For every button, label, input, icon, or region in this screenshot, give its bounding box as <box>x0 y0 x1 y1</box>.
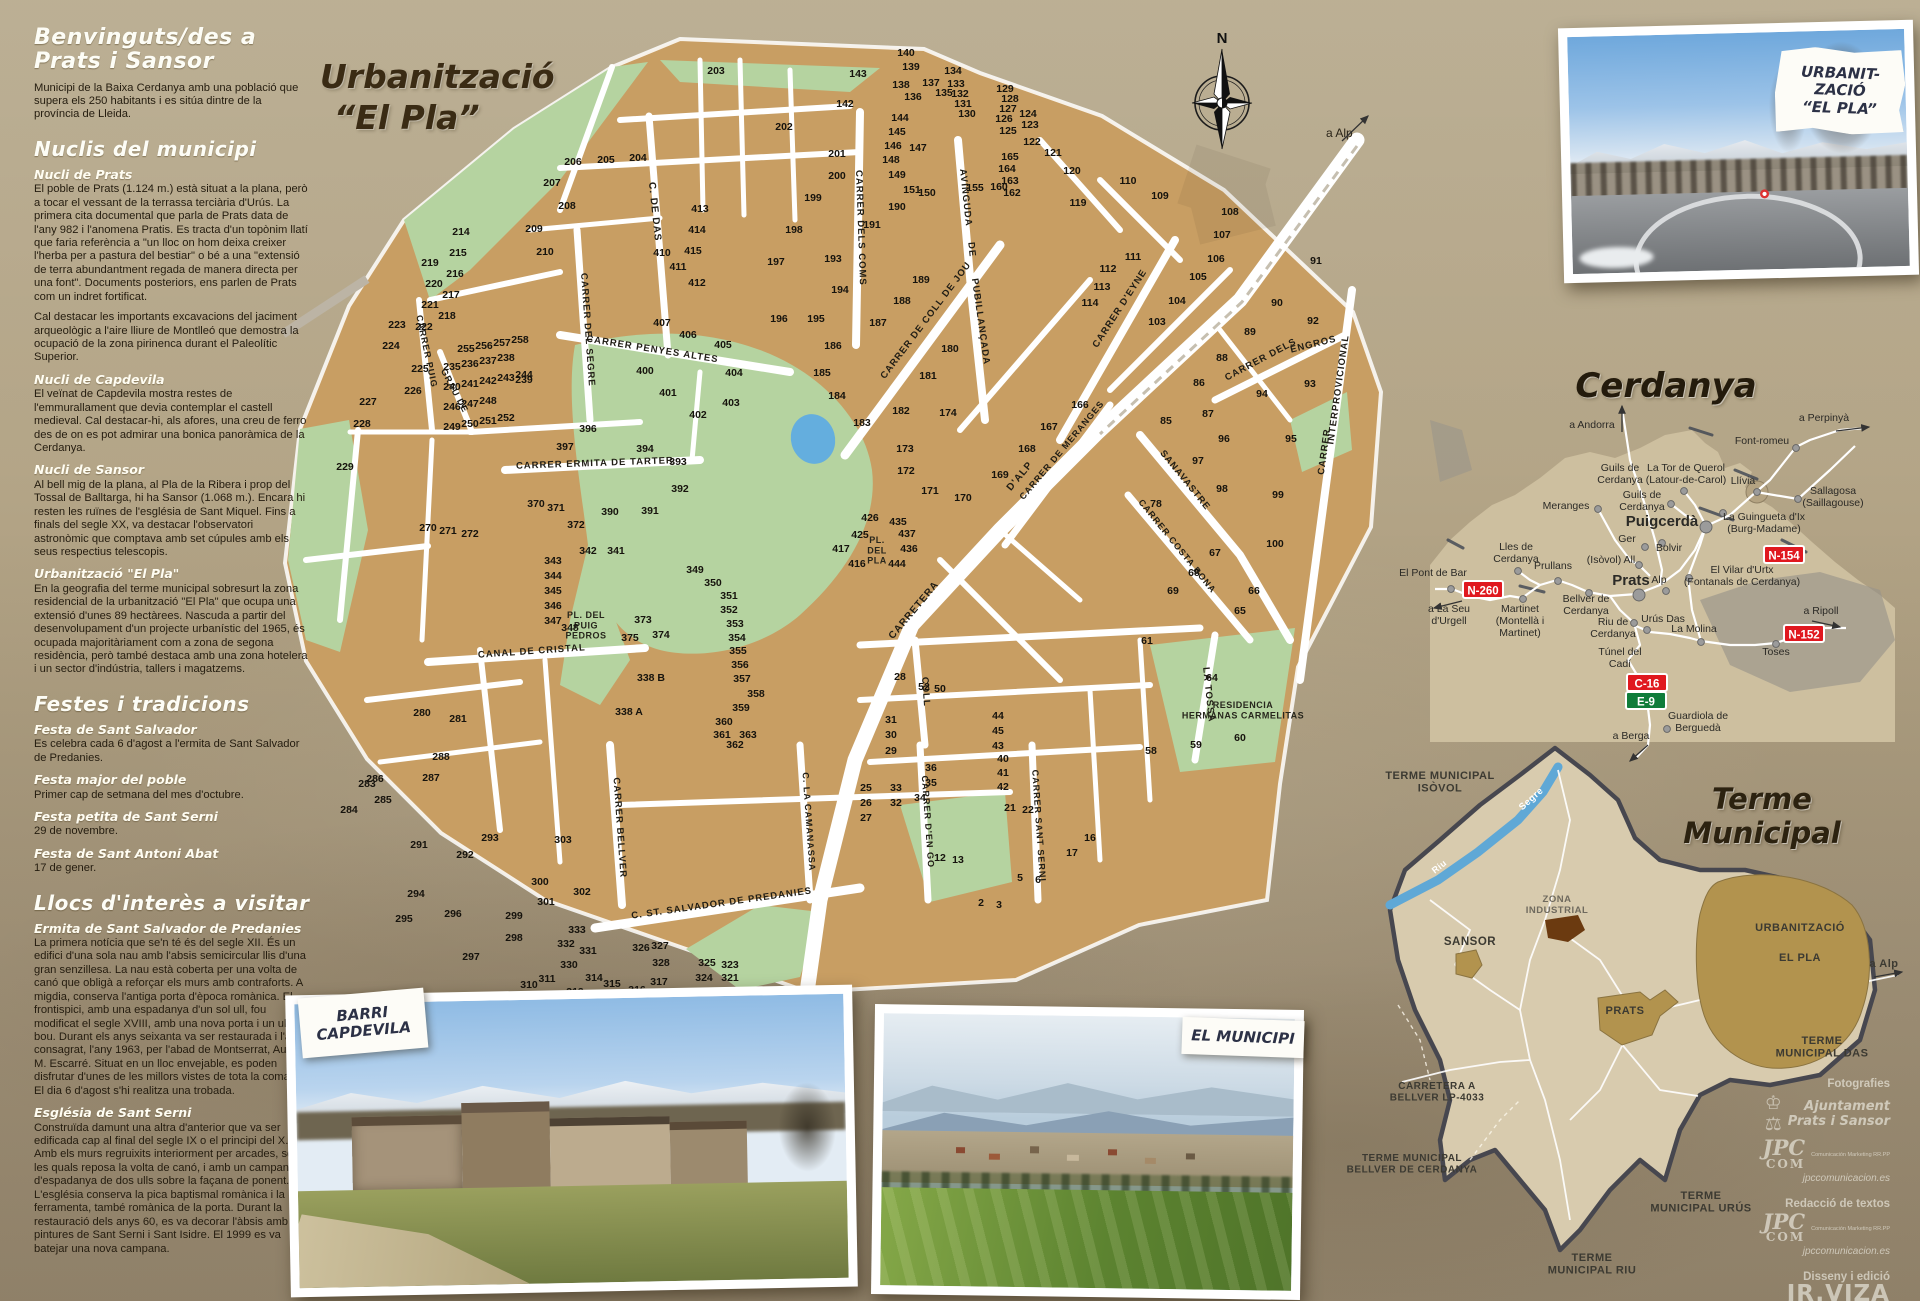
parcel-number: 330 <box>560 959 578 971</box>
parcel-number: 328 <box>652 957 670 969</box>
parcel-number: 104 <box>1168 295 1186 307</box>
compass-n-label: N <box>1217 30 1228 47</box>
parcel-number: 85 <box>1160 415 1172 427</box>
parcel-number: 355 <box>729 645 747 657</box>
town-label: Toses <box>1762 646 1789 658</box>
parcel-number: 34 <box>914 792 926 804</box>
parcel-number: 298 <box>505 932 523 944</box>
festa-3-text: 29 de novembre. <box>34 825 310 838</box>
parcel-number: 394 <box>636 443 654 455</box>
parcel-number: 66 <box>1248 585 1260 597</box>
parcel-number: 353 <box>726 618 744 630</box>
parcel-number: 98 <box>1216 483 1228 495</box>
town-dot <box>1636 562 1643 569</box>
parcel-number: 257 <box>493 337 511 349</box>
parcel-number: 12 <box>934 852 946 864</box>
parcel-number: 240 <box>443 381 461 393</box>
parcel-number: 209 <box>525 223 543 235</box>
parcel-number: 286 <box>366 773 384 785</box>
parcel-number: 374 <box>652 629 670 641</box>
parcel-number: 297 <box>462 951 480 963</box>
credit-redaccio-label: Redacció de textos <box>1690 1198 1890 1210</box>
parcel-number: 167 <box>1040 421 1058 433</box>
roof-5 <box>1108 1150 1117 1156</box>
town-label: Meranges <box>1543 500 1590 512</box>
parcel-number: 160 <box>990 181 1008 193</box>
parcel-number: 168 <box>1018 443 1036 455</box>
parcel-number: 223 <box>388 319 406 331</box>
parcel-number: 16 <box>1084 832 1096 844</box>
scales-icon: ⚖ <box>1765 1114 1782 1135</box>
parcel-number: 68 <box>1188 567 1200 579</box>
parcel-number: 281 <box>449 713 467 725</box>
parcel-number: 354 <box>728 632 746 644</box>
parcel-number: 187 <box>869 317 887 329</box>
parcel-number: 258 <box>511 334 529 346</box>
parcel-number: 112 <box>1100 263 1117 275</box>
parcel-number: 391 <box>641 505 659 517</box>
parcel-number: 87 <box>1202 408 1214 420</box>
parcel-number: 344 <box>544 570 562 582</box>
road-badge-text: N-152 <box>1788 630 1819 642</box>
parcel-number: 105 <box>1189 271 1207 283</box>
town-dot <box>1795 496 1802 503</box>
terme-label: TERME MUNICIPALISÒVOL <box>1385 770 1494 795</box>
parcel-number: 404 <box>725 367 743 379</box>
parcel-number: 217 <box>442 289 460 301</box>
parcel-number: 126 <box>995 113 1013 125</box>
parcel-number: 96 <box>1218 433 1230 445</box>
parcel-number: 407 <box>653 317 671 329</box>
parcel-number: 171 <box>921 485 939 497</box>
parcel-number: 61 <box>1141 635 1153 647</box>
parcel-number: 390 <box>601 506 619 518</box>
town-dot <box>1644 627 1651 634</box>
parcel-number: 331 <box>579 945 597 957</box>
parcel-number: 225 <box>411 363 429 375</box>
parcel-number: 246 <box>443 401 461 413</box>
parcel-number: 321 <box>721 972 739 984</box>
parcel-number: 189 <box>912 274 930 286</box>
town-label: La Guingueta d'Ix(Burg-Madame) <box>1723 511 1806 535</box>
parcel-number: 88 <box>1216 352 1228 364</box>
town-label: Guils deCerdanya <box>1619 489 1665 513</box>
parcel-number: 25 <box>860 782 872 794</box>
terme-label: CARRETERA ABELLVER LP-4033 <box>1390 1081 1485 1104</box>
parcel-number: 155 <box>966 182 984 194</box>
parcel-number: 13 <box>952 854 964 866</box>
poster: C. DE DASCARRER DEL SEGRECARRER PUIGGRAU… <box>0 0 1920 1301</box>
parcel-number: 22 <box>1022 804 1034 816</box>
parcel-number: 301 <box>537 896 555 908</box>
parcel-number: 360 <box>715 716 733 728</box>
town-dot <box>1448 586 1455 593</box>
parcel-number: 343 <box>544 555 562 567</box>
parcel-number: 210 <box>536 246 554 258</box>
parcel-number: 36 <box>925 762 937 774</box>
parcel-number: 396 <box>579 423 597 435</box>
compass-rose: N <box>1192 30 1252 149</box>
parcel-number: 285 <box>374 794 392 806</box>
parcel-number: 204 <box>629 152 647 164</box>
subhead-urbanitzacio: Urbanització "El Pla" <box>34 567 310 581</box>
town-label: El Pont de Bar <box>1399 567 1467 579</box>
parcel-number: 271 <box>439 525 457 537</box>
parcel-number: 106 <box>1207 253 1225 265</box>
parcel-number: 92 <box>1307 315 1319 327</box>
parcel-number: 272 <box>461 528 479 540</box>
parcel-number: 342 <box>579 545 597 557</box>
parcel-number: 91 <box>1310 255 1322 267</box>
parcel-number: 373 <box>634 614 652 626</box>
parcel-number: 6 <box>1035 874 1041 886</box>
parcel-number: 65 <box>1234 605 1246 617</box>
parcel-number: 180 <box>941 343 959 355</box>
parcel-number: 78 <box>1150 498 1162 510</box>
parcel-number: 226 <box>404 385 422 397</box>
parcel-number: 270 <box>419 522 437 534</box>
parcel-number: 185 <box>813 367 831 379</box>
parcel-number: 144 <box>891 112 909 124</box>
parcel-number: 181 <box>919 370 937 382</box>
parcel-number: 414 <box>688 224 706 236</box>
parcel-number: 417 <box>832 543 850 555</box>
cerdanya-mountains-w <box>1430 420 1472 482</box>
town-label: Font-romeu <box>1735 435 1789 447</box>
parcel-number: 243 <box>497 372 515 384</box>
parcel-number: 284 <box>340 804 358 816</box>
parcel-number: 140 <box>897 47 915 59</box>
parcel-number: 227 <box>359 396 377 408</box>
road-badge-text: N-154 <box>1768 551 1800 563</box>
parcel-number: 222 <box>415 321 433 333</box>
parcel-number: 294 <box>407 888 425 900</box>
parcel-number: 248 <box>479 395 497 407</box>
info-sidebar: Benvinguts/des aPrats i Sansor Municipi … <box>34 26 310 1284</box>
ajuntament-credit: AjuntamentPrats i Sansor <box>1788 1100 1890 1130</box>
parcel-number: 42 <box>997 781 1009 793</box>
parcel-number: 219 <box>421 257 439 269</box>
urbanitzacio-blob <box>1696 875 1869 1068</box>
parcel-number: 86 <box>1193 377 1205 389</box>
parcel-number: 97 <box>1192 455 1204 467</box>
parcel-number: 183 <box>853 417 871 429</box>
town-label: Guardiola deBerguedà <box>1668 710 1728 734</box>
credit-photos-label: Fotografies <box>1690 1078 1890 1090</box>
parcel-number: 426 <box>861 512 879 524</box>
parcel-number: 142 <box>836 98 854 110</box>
crown-icon: ♔⚖ <box>1765 1094 1782 1136</box>
town-label: a Berga <box>1613 730 1650 742</box>
parcel-number: 2 <box>978 897 984 909</box>
parcel-number: 191 <box>863 219 881 231</box>
parcel-number: 28 <box>894 671 906 683</box>
roof-6 <box>1145 1158 1156 1164</box>
town-label: Prats <box>1612 572 1650 589</box>
parcel-number: 93 <box>1304 378 1316 390</box>
parcel-number: 27 <box>860 812 872 824</box>
urbanitzacio-paragraph: En la geografia del terme municipal sobr… <box>34 583 310 677</box>
festa-2-head: Festa major del poble <box>34 773 310 787</box>
terme-label: EL PLA <box>1779 952 1821 964</box>
parcel-number: 238 <box>497 352 515 364</box>
parcel-number: 208 <box>558 200 576 212</box>
sansor-paragraph: Al bell mig de la plana, al Pla de la Ri… <box>34 479 310 560</box>
parcel-number: 229 <box>336 461 354 473</box>
parcel-number: 169 <box>991 469 1009 481</box>
subhead-capdevila: Nucli de Capdevila <box>34 373 310 387</box>
town-dot <box>1664 726 1671 733</box>
parcel-number: 59 <box>1190 739 1202 751</box>
roof-1 <box>956 1147 965 1153</box>
parcel-number: 347 <box>544 615 562 627</box>
parcel-number: 218 <box>438 310 456 322</box>
festa-1-text: Es celebra cada 6 d'agost a l'ermita de … <box>34 738 310 765</box>
terme-label: PRATS <box>1606 1005 1645 1017</box>
town-label: Ger <box>1618 533 1636 545</box>
parcel-number: 41 <box>997 767 1009 779</box>
parcel-number: 60 <box>1234 732 1246 744</box>
intro-paragraph: Municipi de la Baixa Cerdanya amb una po… <box>34 82 310 122</box>
parcel-number: 220 <box>425 278 443 290</box>
parcel-number: 235 <box>443 361 461 373</box>
town-label: a Perpinyà <box>1799 412 1849 424</box>
parcel-number: 242 <box>479 375 497 387</box>
parcel-number: 164 <box>998 163 1016 175</box>
parcel-number: 375 <box>621 632 639 644</box>
parcel-number: 397 <box>556 441 574 453</box>
parcel-number: 58 <box>1145 745 1157 757</box>
town-dot <box>1663 588 1670 595</box>
parcel-number: 295 <box>395 913 413 925</box>
parcel-number: 40 <box>997 753 1009 765</box>
terme-label: a Alp <box>1870 958 1899 970</box>
parcel-number: 356 <box>731 659 749 671</box>
parcel-number: 184 <box>828 390 846 402</box>
parcel-number: 195 <box>807 313 825 325</box>
parcel-number: 125 <box>999 125 1017 137</box>
parcel-number: 303 <box>554 834 572 846</box>
prats-paragraph-2: Cal destacar les importants excavacions … <box>34 311 310 365</box>
parcel-number: 120 <box>1063 165 1081 177</box>
parcel-number: 437 <box>898 528 916 540</box>
parcel-number: 372 <box>567 519 585 531</box>
jpc-logo: JPCCOM Comunicación Marketing RR.PP <box>1690 1140 1890 1171</box>
parcel-number: 198 <box>785 224 803 236</box>
parcel-number: 406 <box>679 329 697 341</box>
parcel-number: 5 <box>1017 872 1023 884</box>
parcel-number: 241 <box>461 378 479 390</box>
parcel-number: 317 <box>650 976 668 988</box>
parcel-number: 69 <box>1167 585 1179 597</box>
parcel-number: 256 <box>475 340 493 352</box>
parcel-number: 182 <box>892 405 910 417</box>
parcel-number: 291 <box>410 839 428 851</box>
town-dot <box>1520 596 1527 603</box>
parcel-number: 29 <box>885 745 897 757</box>
cerdanya-map: a Andorraa PerpinyàFont-romeuGuils deCer… <box>1399 406 1895 761</box>
parcel-number: 197 <box>767 256 785 268</box>
parcel-number: 237 <box>479 355 497 367</box>
parcel-number: 325 <box>698 957 716 969</box>
parcel-number: 247 <box>461 398 479 410</box>
parcel-number: 67 <box>1209 547 1221 559</box>
parcel-number: 166 <box>1071 399 1089 411</box>
town-label: Puigcerdà <box>1626 513 1699 530</box>
parcel-number: 214 <box>452 226 470 238</box>
parcel-number: 205 <box>597 154 615 166</box>
map-title: Urbanització “El Pla” <box>320 56 555 139</box>
parcel-number: 172 <box>897 465 915 477</box>
parcel-number: 111 <box>1125 251 1142 263</box>
road-badge-text: N-260 <box>1467 586 1498 598</box>
parcel-number: 416 <box>848 558 866 570</box>
direction-arrow <box>1630 745 1648 761</box>
parcel-number: 143 <box>849 68 867 80</box>
parcel-number: 425 <box>851 529 869 541</box>
capdevila-paragraph: El veïnat de Capdevila mostra restes de … <box>34 388 310 455</box>
parcel-number: 392 <box>671 483 689 495</box>
town-dot <box>1595 506 1602 513</box>
town-label: (Isòvol) All <box>1587 554 1635 566</box>
town-label: Prullans <box>1534 560 1572 572</box>
parcel-number: 94 <box>1256 388 1268 400</box>
parcel-number: 90 <box>1271 297 1283 309</box>
parcel-number: 215 <box>449 247 467 259</box>
parcel-number: 296 <box>444 908 462 920</box>
parcel-number: 314 <box>585 972 603 984</box>
parcel-number: 287 <box>422 772 440 784</box>
parcel-number: 165 <box>1001 151 1019 163</box>
town-label: Alp <box>1651 574 1666 586</box>
parcel-number: 150 <box>918 187 936 199</box>
esglesia-head: Església de Sant Serni <box>34 1106 310 1120</box>
parcel-number: 45 <box>992 725 1004 737</box>
parcel-number: 333 <box>568 924 586 936</box>
town-dot <box>1642 544 1649 551</box>
parcel-number: 403 <box>722 397 740 409</box>
town-dot <box>1555 578 1562 585</box>
parcel-number: 188 <box>893 295 911 307</box>
parcel-number: 201 <box>828 148 846 160</box>
cerdanya-title: Cerdanya <box>1566 366 1766 406</box>
parcel-number: 89 <box>1244 326 1256 338</box>
parcel-number: 50 <box>934 683 946 695</box>
parcel-number: 3 <box>996 899 1002 911</box>
parcel-number: 136 <box>904 91 922 103</box>
place-label: PL.DELPLA <box>867 535 887 566</box>
parcel-number: 413 <box>691 203 709 215</box>
parcel-number: 311 <box>539 973 556 985</box>
parcel-number: 244 <box>515 369 533 381</box>
parcel-number: 338 B <box>637 672 665 684</box>
town-label: Sallagosa(Saillagouse) <box>1802 485 1863 509</box>
parcel-number: 43 <box>992 740 1004 752</box>
parcel-number: 123 <box>1021 119 1039 131</box>
parcel-number: 292 <box>456 849 474 861</box>
festa-1-head: Festa de Sant Salvador <box>34 723 310 737</box>
a-alp-label: a Alp <box>1326 126 1353 140</box>
parcel-number: 44 <box>992 710 1004 722</box>
town-dot <box>1633 589 1645 601</box>
town-label: Martinet(Montellà iMartinet) <box>1496 603 1544 639</box>
town-label: a Andorra <box>1569 419 1615 431</box>
parcel-number: 411 <box>670 261 687 273</box>
credits-block: Fotografies ♔⚖ AjuntamentPrats i Sansor … <box>1690 1064 1890 1301</box>
parcel-number: 122 <box>1023 136 1041 148</box>
parcel-number: 134 <box>944 65 962 77</box>
parcel-number: 302 <box>573 886 591 898</box>
town-label: Lles deCerdanya <box>1493 541 1539 565</box>
terme-label: URBANITZACIÓ <box>1755 921 1845 934</box>
parcel-number: 345 <box>544 585 562 597</box>
town-label: Llívia <box>1731 475 1756 487</box>
subhead-prats: Nucli de Prats <box>34 168 310 182</box>
parcel-number: 173 <box>896 443 914 455</box>
town-dot <box>1700 521 1712 533</box>
town-dot <box>1698 639 1705 646</box>
parcel-number: 147 <box>909 142 927 154</box>
parcel-number: 236 <box>461 358 479 370</box>
jpc-url-2: jpccomunicacion.es <box>1690 1246 1890 1257</box>
terme-label: TERMEMUNICIPAL RIU <box>1548 1252 1637 1277</box>
parcel-number: 393 <box>669 456 687 468</box>
section-nuclis: Nuclis del municipi <box>34 138 310 160</box>
parcel-number: 145 <box>888 126 906 138</box>
ermita-text: La primera notícia que se'n té és del se… <box>34 937 310 1098</box>
town-dot <box>1793 445 1800 452</box>
parcel-number: 31 <box>885 714 897 726</box>
parcel-number: 170 <box>954 492 972 504</box>
town-dot <box>1668 501 1675 508</box>
esglesia-text: Construïda damunt una altra d'anterior q… <box>34 1122 310 1256</box>
parcel-number: 327 <box>651 940 669 952</box>
roof-7 <box>1186 1153 1195 1159</box>
parcel-number: 114 <box>1082 297 1099 309</box>
parcel-number: 324 <box>695 972 713 984</box>
town-label: La Tor de Querol(Latour-de-Carol) <box>1646 462 1727 486</box>
parcel-number: 113 <box>1094 281 1111 293</box>
parcel-number: 349 <box>686 564 704 576</box>
parcel-number: 251 <box>479 415 497 427</box>
parcel-number: 370 <box>527 498 545 510</box>
town-label: La Molina <box>1671 623 1717 635</box>
parcel-number: 21 <box>1004 802 1016 814</box>
parcel-number: 323 <box>721 959 739 971</box>
parcel-number: 351 <box>720 590 738 602</box>
parcel-number: 300 <box>531 876 549 888</box>
parcel-number: 190 <box>888 201 906 213</box>
parcel-number: 196 <box>770 313 788 325</box>
section-llocs: Llocs d'interès a visitar <box>34 892 310 914</box>
town-label: Bolvir <box>1656 542 1683 554</box>
parcel-number: 148 <box>882 154 900 166</box>
road-sign <box>1760 189 1769 198</box>
parcel-number: 186 <box>824 340 842 352</box>
festa-4-head: Festa de Sant Antoni Abat <box>34 847 310 861</box>
parcel-number: 299 <box>505 910 523 922</box>
parcel-number: 149 <box>888 169 906 181</box>
parcel-number: 326 <box>632 942 650 954</box>
parcel-number: 415 <box>684 245 702 257</box>
parcel-number: 206 <box>564 156 582 168</box>
ermita-head: Ermita de Sant Salvador de Predanies <box>34 922 310 936</box>
parcel-number: 358 <box>747 688 765 700</box>
parcel-number: 202 <box>775 121 793 133</box>
town-label: a La Seud'Urgell <box>1428 603 1470 627</box>
parcel-number: 121 <box>1044 147 1062 159</box>
terme-label: TERME MUNICIPALBELLVER DE CERDANYA <box>1347 1153 1478 1176</box>
